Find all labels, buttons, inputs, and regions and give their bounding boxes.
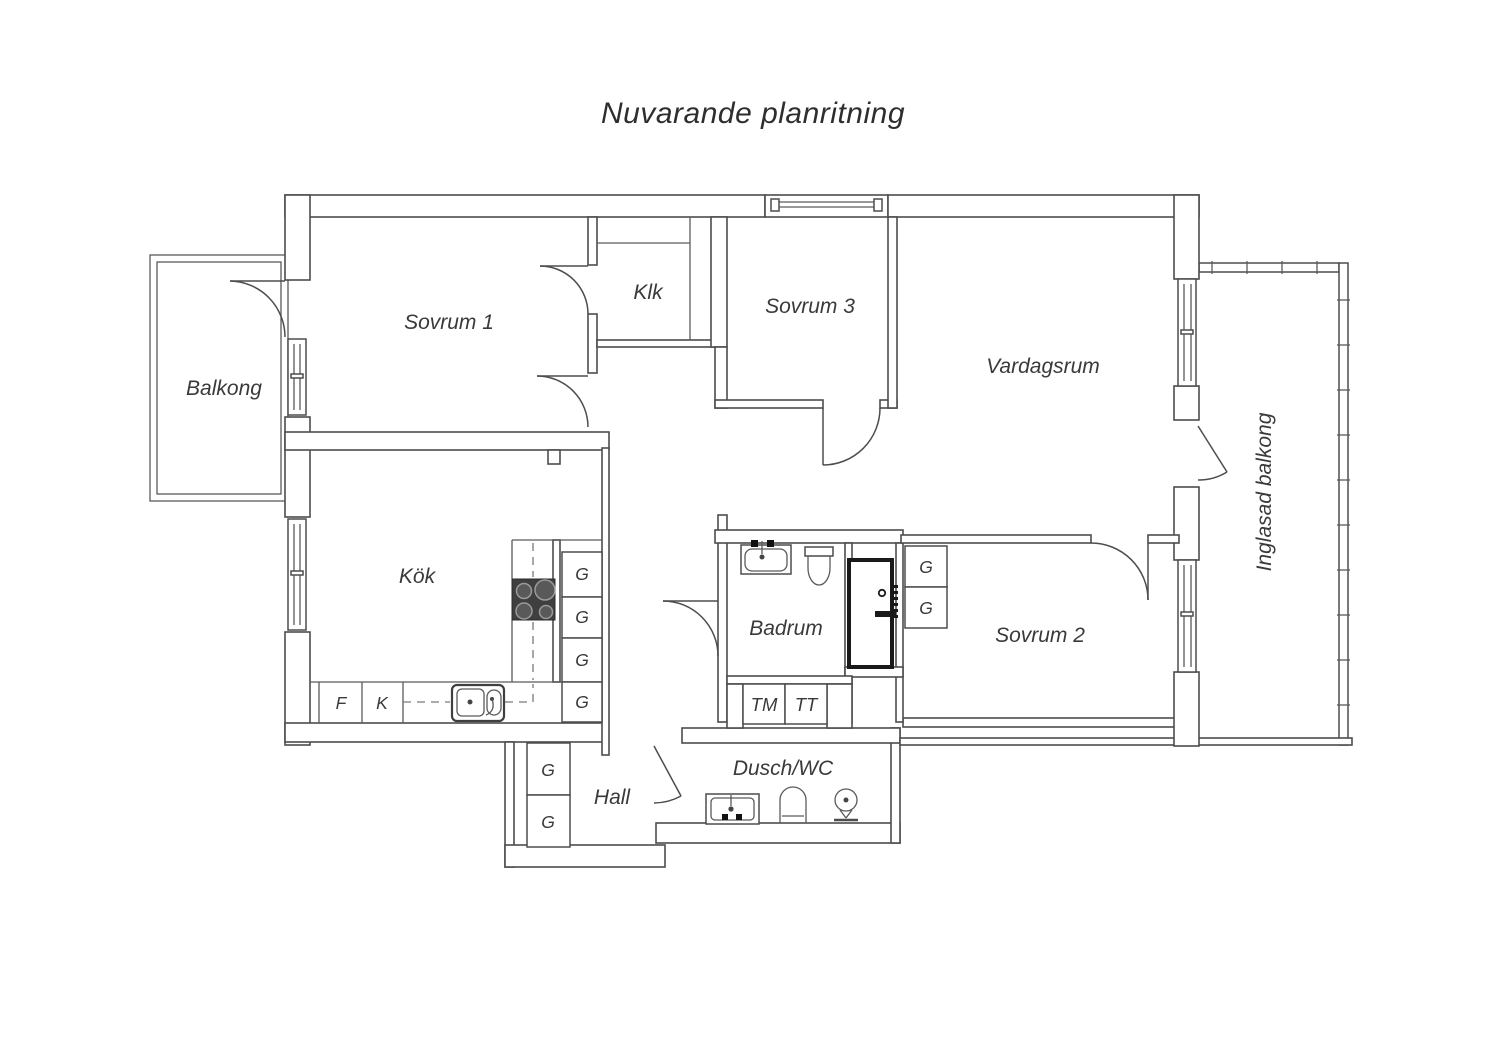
stove-burner <box>535 580 555 600</box>
window-kitchen <box>288 519 306 630</box>
cabinet-label-g: G <box>575 564 589 584</box>
room-label-vardagsrum: Vardagsrum <box>986 355 1100 378</box>
wc-toilet <box>780 787 806 823</box>
cabinet-label-k: K <box>376 693 389 713</box>
kitchen-sink <box>452 685 504 721</box>
door-sovrum2 <box>1091 543 1148 600</box>
cabinet-label-g: G <box>575 607 589 627</box>
room-label-balkong: Balkong <box>186 377 262 400</box>
window-sovrum1-balcony <box>288 339 306 415</box>
badrum-toilet <box>805 547 833 585</box>
cabinet-label-g: G <box>575 692 589 712</box>
room-label-badrum: Badrum <box>749 617 823 640</box>
wc-washbasin <box>706 794 759 824</box>
floor-plan-drawing: Nuvarande planritning Balkong Sovrum 1 K… <box>0 0 1500 1060</box>
faucet-dot <box>468 700 473 705</box>
stove-burner <box>516 603 532 619</box>
badrum-washbasin <box>741 540 791 574</box>
stove-burner <box>517 584 532 599</box>
window-vardagsrum <box>1178 279 1196 386</box>
shower-stand <box>834 789 858 820</box>
room-label-hall: Hall <box>594 786 632 809</box>
appliance-label-tt: TT <box>795 694 819 715</box>
door-sovrum1-to-balcony <box>230 281 285 337</box>
glazing-mullion-ticks <box>1212 261 1350 705</box>
room-label-sovrum2: Sovrum 2 <box>995 624 1085 647</box>
door-vardagsrum-to-balcony <box>1198 426 1227 480</box>
cabinet-label-g: G <box>541 760 555 780</box>
dusch-wc-fixtures <box>706 787 858 824</box>
stove-burner <box>540 606 553 619</box>
window-sovrum2 <box>1178 560 1196 672</box>
room-label-dusch-wc: Dusch/WC <box>733 757 834 780</box>
cabinet-label-g: G <box>919 598 933 618</box>
door-sovrum3 <box>823 408 880 465</box>
room-label-sovrum3: Sovrum 3 <box>765 295 855 318</box>
entrance-door <box>849 560 898 667</box>
door-klk <box>540 266 588 314</box>
cabinet-label-f: F <box>336 693 348 713</box>
room-label-klk: Klk <box>633 281 664 304</box>
door-dusch-wc <box>654 746 681 803</box>
door-sovrum1 <box>537 376 588 427</box>
appliance-label-tm: TM <box>751 694 778 715</box>
room-label-sovrum1: Sovrum 1 <box>404 311 494 334</box>
door-badrum <box>663 601 718 656</box>
room-label-kok: Kök <box>399 565 437 588</box>
page-title: Nuvarande planritning <box>601 97 905 130</box>
room-label-inglasad-balkong: Inglasad balkong <box>1253 412 1276 571</box>
cabinet-label-g: G <box>575 650 589 670</box>
stove <box>512 579 555 620</box>
cabinet-label-g: G <box>919 557 933 577</box>
floor-plan-page: Nuvarande planritning Balkong Sovrum 1 K… <box>0 0 1500 1060</box>
cabinet-label-g: G <box>541 812 555 832</box>
